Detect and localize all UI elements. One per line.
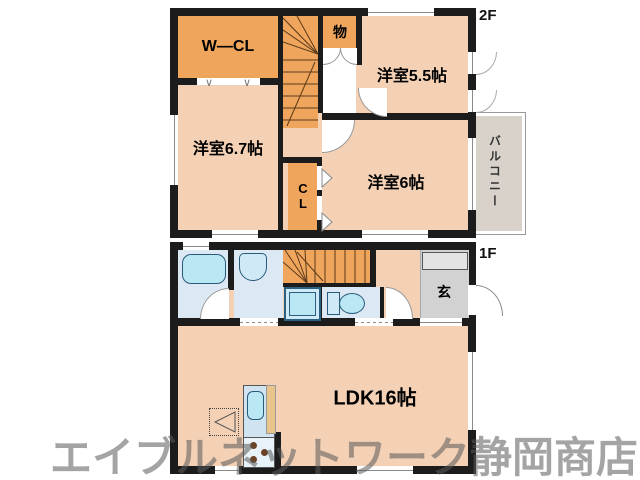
stairs-icon xyxy=(283,250,370,283)
shoe-cabinet-icon xyxy=(422,252,468,270)
window xyxy=(170,115,178,185)
swing-window-arc-icon xyxy=(476,52,497,75)
room-label-bedroom67: 洋室6.7帖 xyxy=(193,135,263,159)
wall xyxy=(380,287,384,318)
room-label-storage: 物 xyxy=(333,22,347,42)
sliding-door-opening xyxy=(240,318,278,326)
room-label-closet: CL xyxy=(296,181,311,211)
door-opening xyxy=(420,318,462,326)
window xyxy=(468,352,476,430)
sliding-door-opening xyxy=(355,318,393,326)
balcony-door-opening xyxy=(468,138,476,210)
room-label-ldk: LDK16帖 xyxy=(333,382,416,411)
room-label-bedroom55: 洋室5.5帖 xyxy=(377,62,447,86)
sliding-door-triangle-icon xyxy=(321,168,333,232)
stairs-2f-area xyxy=(283,16,318,128)
watermark-text: エイブルネットワーク静岡商店 xyxy=(50,424,638,480)
floor-2-label: 2F xyxy=(479,7,497,24)
washing-machine-icon xyxy=(284,287,321,321)
room-label-bedroom6: 洋室6帖 xyxy=(368,169,425,193)
window-opening xyxy=(468,52,476,74)
floorplan-canvas: バルコニー ∨ ∨ xyxy=(0,0,640,480)
bathtub-icon xyxy=(182,254,226,284)
balcony-label: バルコニー xyxy=(487,135,504,210)
floor-1-label: 1F xyxy=(479,245,497,262)
stairs-1f-area xyxy=(283,250,370,283)
window xyxy=(212,230,258,238)
window xyxy=(183,242,209,250)
front-door-arc-icon xyxy=(476,285,503,316)
front-door-opening xyxy=(468,285,476,315)
wall xyxy=(322,113,468,120)
wall xyxy=(278,78,283,230)
window-opening xyxy=(468,90,476,112)
room-label-wcl: W—CL xyxy=(202,38,254,56)
room-label-entrance: 玄 xyxy=(437,282,451,302)
toilet-bowl-icon xyxy=(339,293,365,314)
window xyxy=(362,230,428,238)
wall xyxy=(370,250,376,283)
folding-door-icon: ∨ xyxy=(205,80,213,87)
window xyxy=(368,8,434,16)
folding-door-icon: ∨ xyxy=(243,80,251,87)
kitchen-sink-icon xyxy=(247,391,264,420)
stairs-icon xyxy=(283,16,318,128)
swing-window-arc-icon xyxy=(476,90,497,113)
washbasin-icon xyxy=(239,253,267,281)
